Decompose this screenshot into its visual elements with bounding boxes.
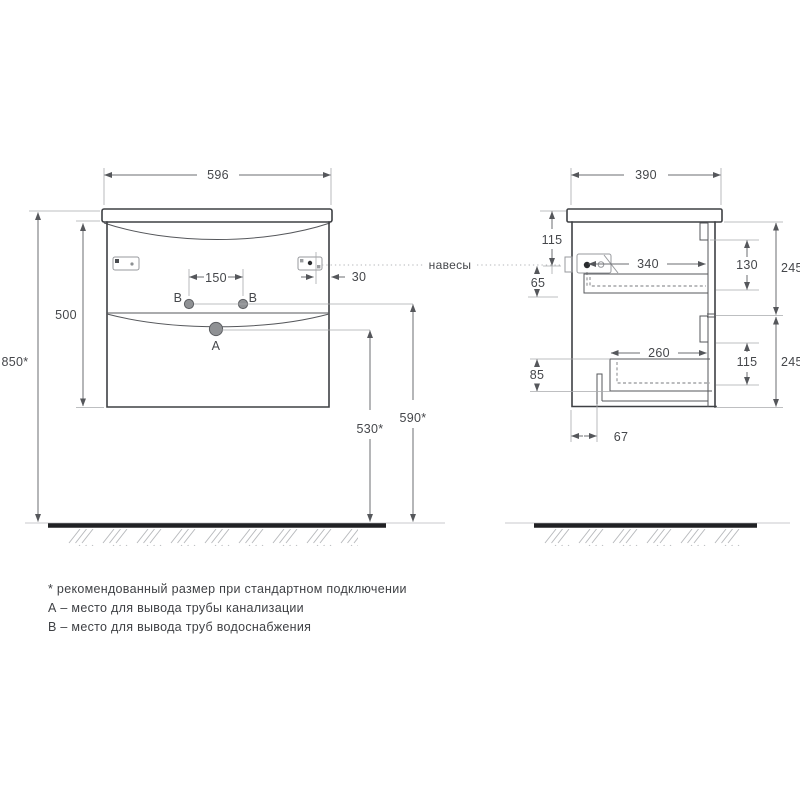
bracket-pin-icon: [584, 262, 590, 268]
front-cabinet-body: [107, 222, 329, 407]
dim-mount-height: 850*: [2, 211, 100, 522]
hole-a: [209, 322, 222, 335]
side-countertop: [567, 209, 722, 222]
lower-drawer-profile: [610, 359, 712, 391]
hangers-label: навесы: [429, 258, 472, 272]
bracket-pin-icon: [308, 261, 312, 265]
floor-left: [25, 523, 445, 546]
dim-front-height: 500: [55, 221, 104, 408]
dim-depth: 390: [571, 168, 721, 205]
dim-hanger-offset: 30: [301, 270, 366, 284]
dim-label-150: 150: [205, 271, 227, 285]
dim-drain-height: 530*: [222, 330, 383, 522]
bracket-screw-icon: [115, 259, 119, 263]
dim-lower-drawer-front: 245: [716, 317, 800, 408]
dim-upper-front-inset: 130: [710, 240, 759, 290]
vanity-dimension-drawing: B B A 596 500 850* 150: [0, 0, 800, 800]
hole-b-left: [184, 299, 193, 308]
dim-label-260: 260: [648, 346, 670, 360]
dim-label-115-lower: 115: [737, 355, 758, 369]
drawer-rail-upper: [700, 223, 708, 240]
dim-label-590: 590*: [400, 411, 427, 425]
dim-label-85: 85: [530, 368, 545, 382]
dim-label-245-lower: 245: [781, 355, 800, 369]
dim-label-596: 596: [207, 168, 229, 182]
legend: * рекомендованный размер при стандартном…: [48, 582, 407, 634]
upper-drawer-profile: [584, 274, 708, 293]
dim-label-390: 390: [635, 168, 657, 182]
note-drain: А – место для вывода трубы канализации: [48, 601, 304, 615]
dim-label-530: 530*: [357, 422, 384, 436]
dim-hanger-top-offset: 115: [540, 211, 566, 274]
dim-label-340: 340: [637, 257, 659, 271]
dim-label-65: 65: [531, 276, 546, 290]
dim-lower-drawer-depth: 260: [611, 346, 707, 360]
dim-lower-front-inset: 115: [716, 343, 759, 385]
technical-drawing-page: B B A 596 500 850* 150: [0, 0, 800, 800]
floor-hatch: [66, 529, 358, 546]
dim-notch-offset: 67: [571, 404, 628, 444]
dim-water-height: 590*: [194, 304, 426, 522]
floor-right: [505, 523, 790, 546]
dim-label-850: 850*: [2, 355, 29, 369]
dim-label-115-top: 115: [542, 233, 563, 247]
dim-faucet-spacing: 150: [189, 269, 243, 296]
hole-b-left-label: B: [174, 291, 183, 305]
dim-upper-drawer-front: 245: [716, 222, 800, 316]
sink-basin-curve: [104, 223, 330, 240]
mounting-bracket-right: [298, 252, 322, 284]
dim-bottom-offset: 85: [530, 359, 610, 392]
front-view: B B A 596 500 850* 150: [2, 168, 427, 522]
mounting-bracket-left: [113, 257, 139, 270]
side-view: 390 115 65 85 340: [528, 168, 800, 444]
note-recommended: * рекомендованный размер при стандартном…: [48, 582, 407, 596]
dim-label-30: 30: [352, 270, 367, 284]
hole-b-right-label: B: [249, 291, 258, 305]
dim-hanger-drop: 65: [528, 267, 558, 298]
pipe-notch: [597, 374, 602, 407]
dim-front-width: 596: [104, 168, 331, 205]
dim-upper-drawer-depth: 340: [589, 257, 706, 271]
dim-label-500: 500: [55, 308, 77, 322]
note-water: В – место для вывода труб водоснабжения: [48, 620, 311, 634]
hole-a-label: A: [212, 339, 221, 353]
side-cabinet-back-bottom: [572, 222, 716, 407]
floor-hatch: [544, 529, 745, 546]
mounting-bracket-side: [565, 254, 618, 288]
dim-label-67: 67: [614, 430, 629, 444]
dim-label-130: 130: [736, 258, 758, 272]
dim-label-245-upper: 245: [781, 261, 800, 275]
drawer-rail-lower: [700, 316, 708, 342]
front-countertop: [102, 209, 332, 222]
